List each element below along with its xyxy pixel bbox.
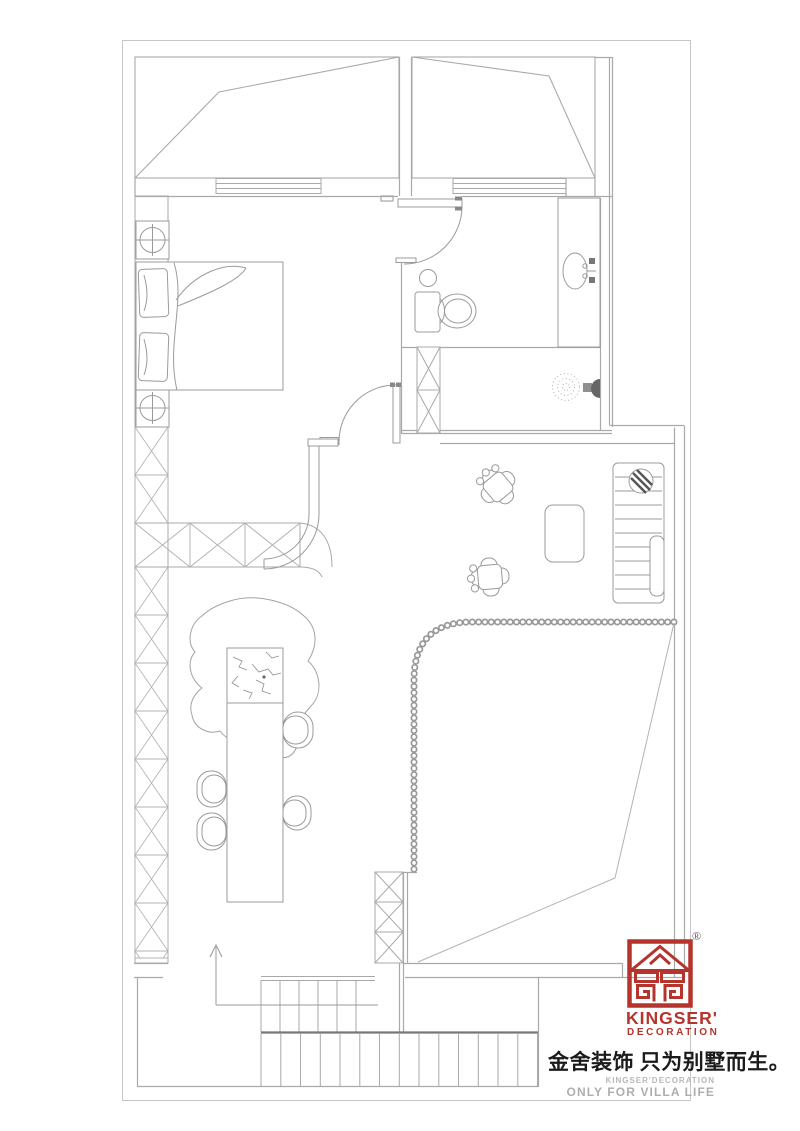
floor-plan-drawing [0, 0, 800, 1131]
potted-plant [629, 469, 653, 493]
pillow [138, 333, 169, 382]
double-bed [136, 262, 283, 390]
slogan-chinese: 金舍装饰 只为别墅而生。 [548, 1046, 790, 1076]
ottoman [545, 505, 584, 562]
shower-valve [583, 383, 592, 392]
logo-wordmark-sub: DECORATION [627, 1027, 719, 1038]
armchair-1 [469, 457, 525, 513]
shower-head [591, 379, 600, 398]
walls [134, 57, 685, 1087]
floor-plan-page: ® KINGSER' DECORATION 金舍装饰 只为别墅而生。 KINGS… [0, 0, 800, 1131]
footer-tagline: ONLY FOR VILLA LIFE [540, 1085, 715, 1099]
bedroom-door [320, 383, 401, 445]
structural-column-bottom [375, 872, 403, 963]
bathroom-door [396, 197, 462, 265]
vanity-sink [558, 198, 600, 347]
column-symbol-top [136, 221, 169, 259]
toilet [415, 270, 476, 333]
shelf-unit [613, 463, 664, 603]
bead-curtain-edge [414, 622, 674, 872]
sloped-ceiling-fold-line [418, 623, 674, 962]
window-band-left [216, 179, 321, 195]
registered-mark: ® [692, 929, 701, 944]
column-symbol-bottom [136, 389, 169, 427]
armchair-2 [466, 556, 511, 597]
footer-brand-line: KINGSER'DECORATION [540, 1076, 725, 1085]
long-bar-table [227, 648, 283, 902]
logo-wordmark: KINGSER' [626, 1008, 718, 1029]
pillow [138, 268, 169, 317]
shower-spray [553, 374, 601, 401]
kingser-logo-icon [630, 942, 691, 1006]
attic-roof-slope-left [135, 57, 399, 178]
toilet-paper-holder [420, 270, 437, 287]
curved-partition-wall [264, 439, 338, 569]
window-band-right [453, 179, 566, 195]
stair-direction-arrow [210, 945, 378, 1005]
attic-roof-slope-right [412, 57, 595, 178]
structural-column-bath [417, 347, 440, 433]
